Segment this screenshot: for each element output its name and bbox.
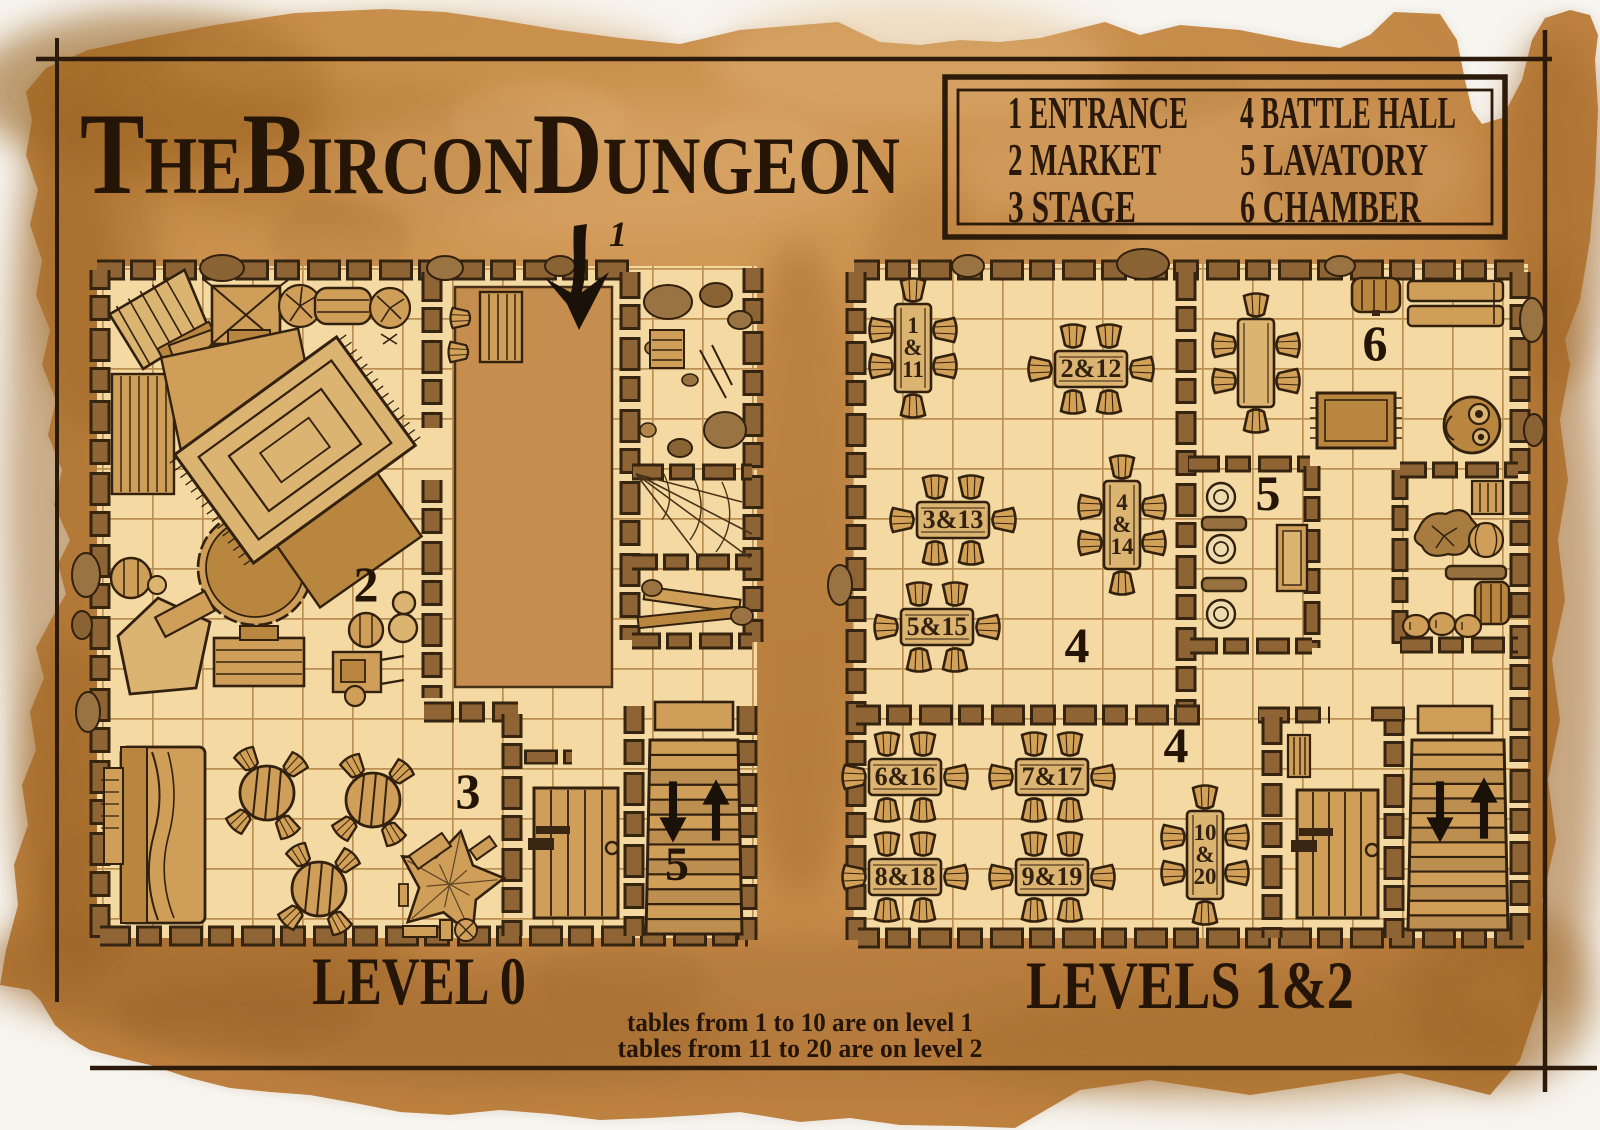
svg-text:1: 1 [609,214,627,254]
svg-text:1 ENTRANCE: 1 ENTRANCE [1008,87,1188,138]
svg-text:14: 14 [1111,534,1135,559]
svg-text:11: 11 [902,357,924,382]
svg-text:8&18: 8&18 [875,862,936,891]
svg-text:3&13: 3&13 [923,505,984,534]
svg-text:6 CHAMBER: 6 CHAMBER [1240,181,1422,232]
svg-text:5 LAVATORY: 5 LAVATORY [1240,134,1428,185]
svg-text:LEVELS 1&2: LEVELS 1&2 [1026,947,1354,1023]
svg-text:6&16: 6&16 [875,762,936,791]
svg-text:5: 5 [1256,465,1281,521]
svg-text:4: 4 [1065,617,1090,673]
svg-text:2: 2 [354,556,379,612]
svg-text:3: 3 [456,763,481,819]
svg-text:5&15: 5&15 [907,612,968,641]
svg-text:tables from 11 to 20 are on l: tables from 11 to 20 are on level 2 [618,1034,983,1063]
svg-text:5: 5 [665,838,689,891]
svg-text:4: 4 [1164,717,1189,773]
svg-text:2 MARKET: 2 MARKET [1008,134,1161,185]
svg-text:3 STAGE: 3 STAGE [1008,181,1136,232]
svg-text:LEVEL 0: LEVEL 0 [312,943,526,1019]
svg-text:7&17: 7&17 [1022,762,1083,791]
svg-text:tables from 1 to 10 are on le: tables from 1 to 10 are on level 1 [627,1008,973,1037]
svg-text:2&12: 2&12 [1061,354,1122,383]
svg-text:6: 6 [1363,315,1388,371]
svg-text:9&19: 9&19 [1022,862,1083,891]
svg-text:4 BATTLE HALL: 4 BATTLE HALL [1240,87,1456,138]
svg-text:20: 20 [1194,864,1217,889]
